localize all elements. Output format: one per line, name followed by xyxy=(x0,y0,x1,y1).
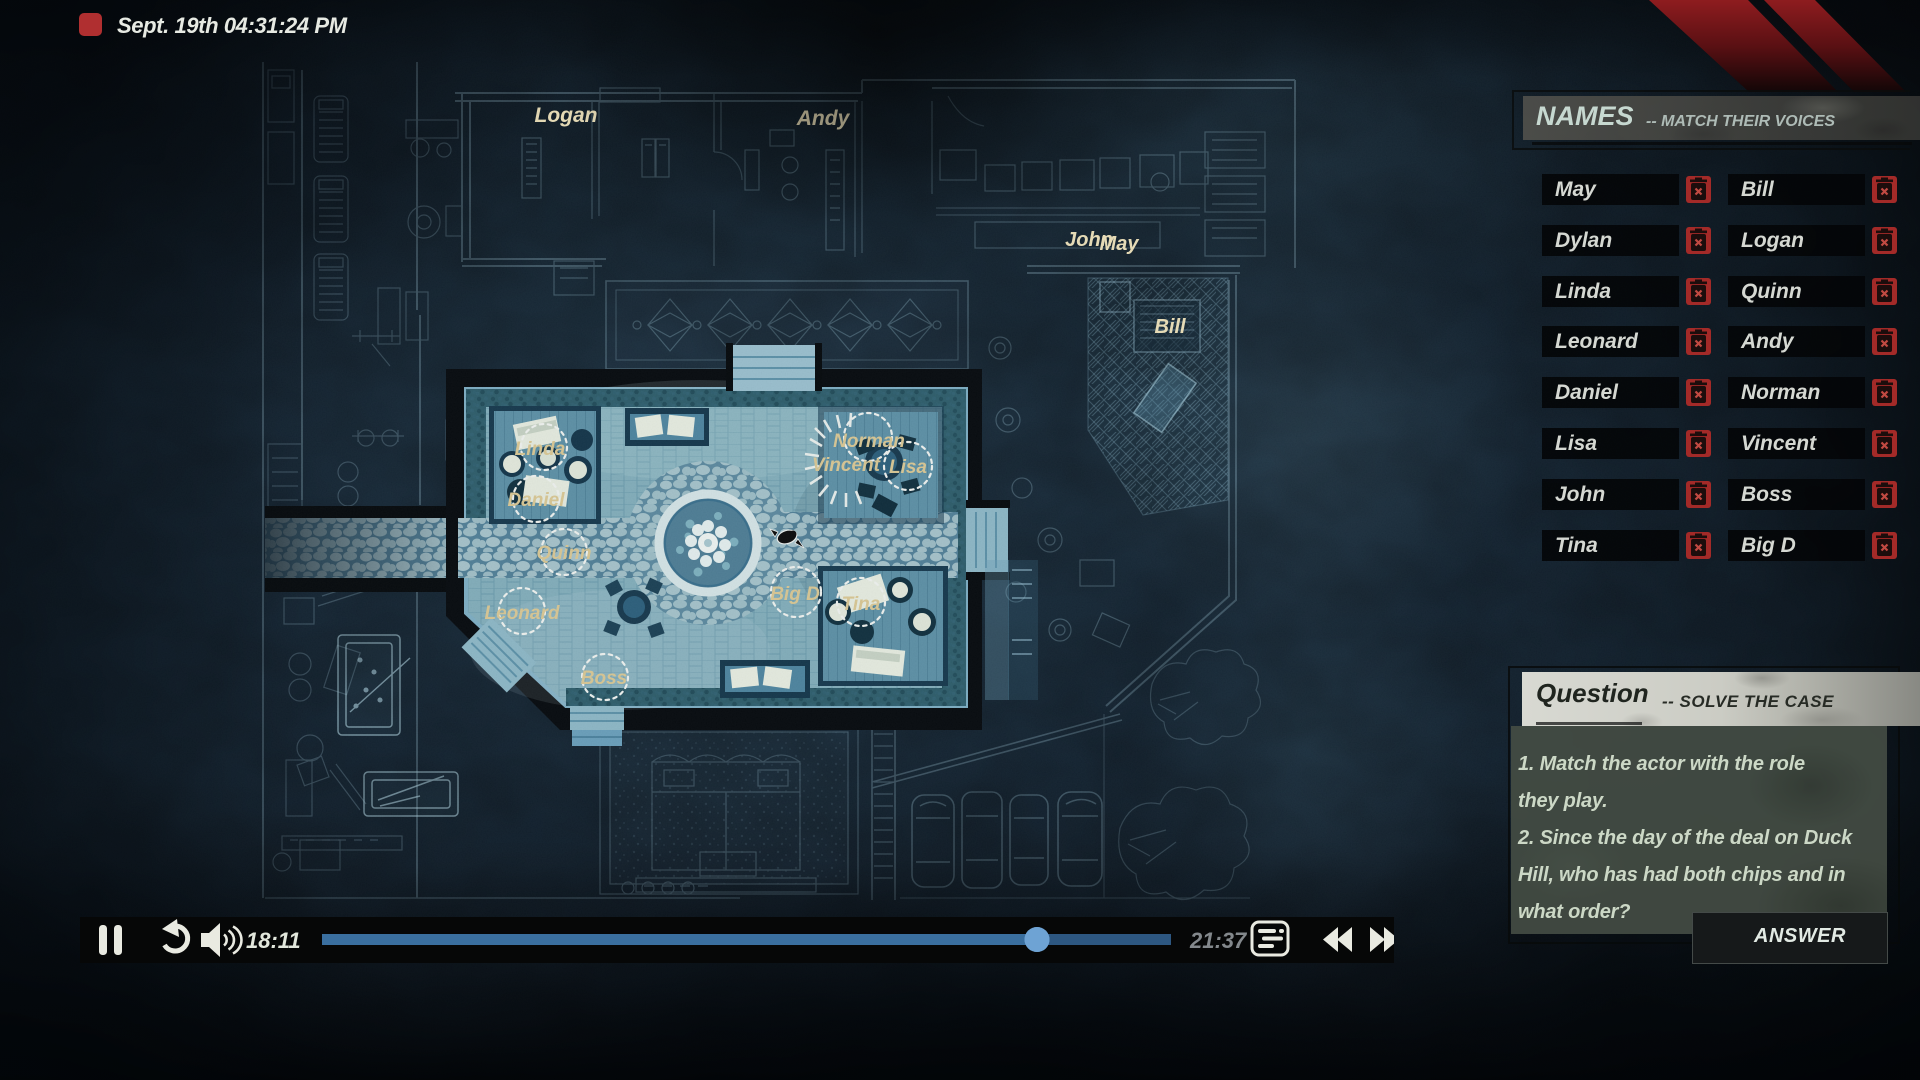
svg-text:21:37: 21:37 xyxy=(1189,928,1248,953)
svg-text:18:11: 18:11 xyxy=(246,928,301,953)
